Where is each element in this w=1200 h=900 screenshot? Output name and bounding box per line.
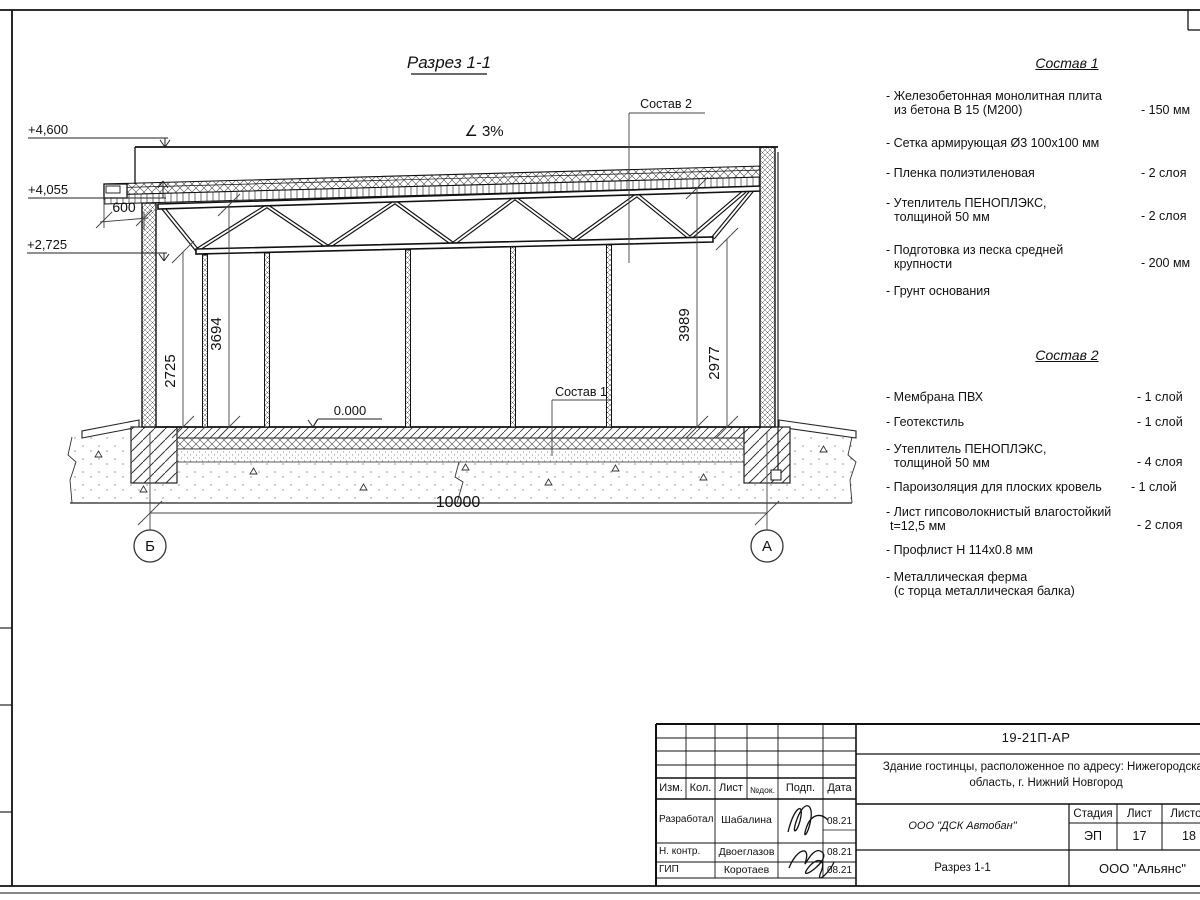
list-item-value: - 2 слоя [1141,210,1186,224]
signature-1 [788,806,828,835]
col-header-podp: Подп. [778,782,823,794]
callout-leaders [552,113,705,456]
foundation-left [131,427,177,483]
list-item-value: - 2 слоя [1137,519,1182,533]
list-item-value: - 4 слоя [1137,456,1182,470]
axis-left-label: Б [145,538,155,555]
list-item: - Железобетонная монолитная плитаиз бето… [886,90,1102,117]
drawing-sheet: 2725 3694 3989 2977 600 10000 Б А +4,600… [0,0,1200,900]
list-item: - Сетка армирующая Ø3 100х100 мм [886,137,1099,151]
dim-overhang: 600 [112,199,136,215]
slope-label: ∠ 3% [464,123,503,140]
view-name: Разрез 1-1 [856,862,1069,874]
sostav1-title: Состав 1 [992,55,1142,71]
row-name: Двоеглазов [715,846,778,858]
sheet-value: 17 [1117,829,1162,843]
row-date: 08.21 [823,865,856,876]
list-item-value: - 150 мм [1141,104,1190,118]
callout-floor: Состав 1 [555,385,607,399]
truss-bottom-chord [196,237,713,254]
org-name: ООО "Альянс" [1069,861,1200,876]
list-item: - Утеплитель ПЕНОПЛЭКС,толщиной 50 мм [886,443,1046,470]
col-header-kol: Кол. [686,782,715,794]
row-date: 08.21 [823,816,856,827]
dim-right-outer: 2977 [706,346,723,379]
list-item: - Пароизоляция для плоских кровель [886,481,1102,495]
dim-left-inner: 2725 [162,354,179,387]
elevation-floor: 0.000 [334,403,367,418]
row-role: Н. контр. [659,846,714,857]
dim-right-inner: 3989 [676,308,693,341]
col-header-ndok: №док. [747,785,778,795]
stage-label: Стадия [1069,808,1117,820]
list-item-value: - 200 мм [1141,257,1190,271]
elevation-truss: +2,725 [27,237,67,252]
doc-number: 19-21П-АР [856,730,1200,745]
axis-right-label: А [762,538,772,555]
floor-slab [177,427,744,462]
list-item: - Геотекстиль [886,416,964,430]
sheets-value: 18 [1162,829,1200,843]
col-header-list: Лист [715,782,747,794]
elevation-roof-top: +4,600 [28,122,68,137]
list-item: - Пленка полиэтиленовая [886,167,1035,181]
list-item-value: - 1 слой [1137,416,1183,430]
axis-left: Б [134,530,166,562]
row-role: Разработал [659,814,714,825]
list-item: - Подготовка из песка среднейкрупности [886,244,1063,271]
sostav2-title: Состав 2 [992,347,1142,363]
row-name: Коротаев [715,864,778,876]
list-item: - Профлист Н 114х0.8 мм [886,544,1033,558]
row-date: 08.21 [823,847,856,858]
list-item-value: - 1 слой [1137,391,1183,405]
list-item: - Утеплитель ПЕНОПЛЭКС,толщиной 50 мм [886,197,1046,224]
stage-value: ЭП [1069,829,1117,843]
list-item: - Металлическая ферма(с торца металличес… [886,571,1075,598]
project-name-line2: область, г. Нижний Новгород [858,777,1200,789]
row-name: Шабалина [715,814,778,826]
col-header-izm: Изм. [656,782,686,794]
list-item: - Лист гипсоволокнистый влагостойкийt=12… [886,506,1111,533]
row-role: ГИП [659,864,714,875]
callout-roof: Состав 2 [640,97,692,111]
list-item: - Грунт основания [886,285,990,299]
sheet-label: Лист [1117,808,1162,820]
drawing-title: Разрез 1-1 [407,53,491,72]
project-name-line1: Здание гостинцы, расположенное по адресу… [858,761,1200,773]
sheets-label: Листов [1162,808,1200,820]
list-item-value: - 2 слоя [1141,167,1186,181]
contractor-company: ООО "ДСК Автобан" [856,820,1069,832]
interior-columns [203,245,612,427]
elevation-parapet: +4,055 [28,182,68,197]
list-item: - Мембрана ПВХ [886,391,983,405]
dim-left-outer: 3694 [208,317,225,350]
dim-span: 10000 [436,494,481,511]
wall-left [142,203,156,427]
list-item-value: - 1 слой [1131,481,1177,495]
axis-right: А [751,530,783,562]
col-header-data: Дата [823,782,856,794]
